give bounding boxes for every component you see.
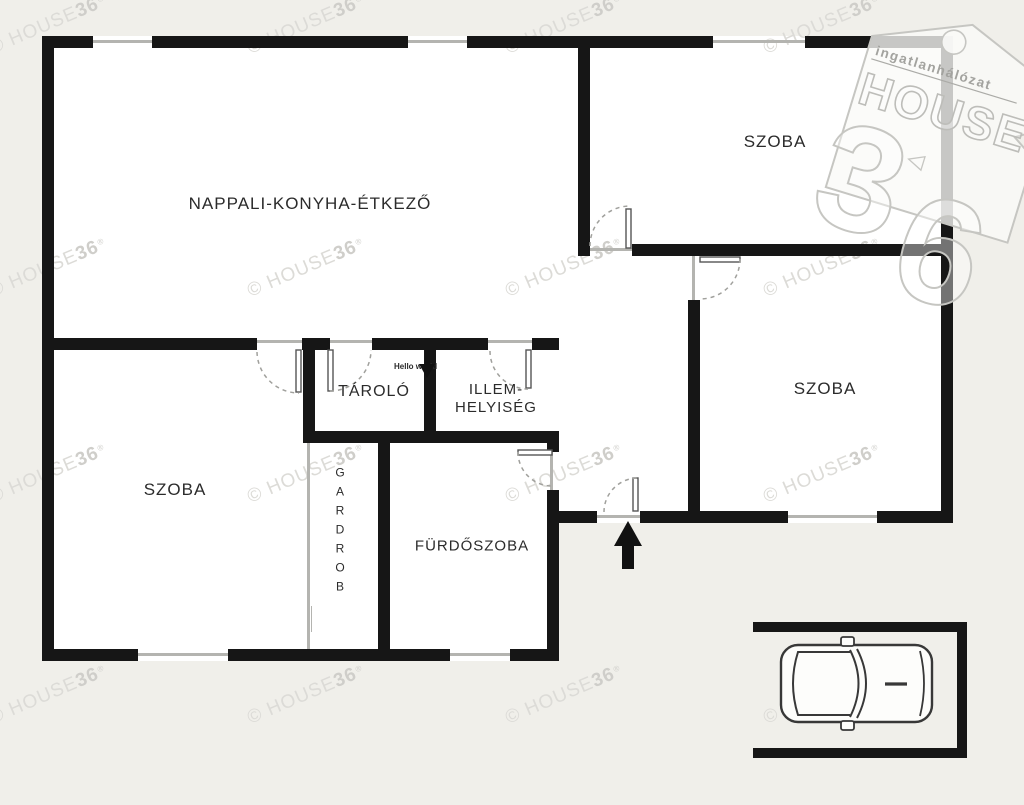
wall-top-2 (152, 36, 408, 48)
door-threshold-szoba-bl (257, 340, 302, 343)
room-label-tarolo: TÁROLÓ (338, 383, 410, 401)
room-label-illem-line1: ILLEM- (455, 381, 537, 399)
door-threshold-tarolo (330, 340, 372, 343)
wall-top-3 (467, 36, 713, 48)
room-label-illem-line2: HELYISÉG (455, 399, 537, 417)
window-top-1 (93, 40, 152, 43)
wall-bottom-right-2 (640, 511, 788, 523)
parking-wall-bottom (753, 748, 967, 758)
window-top-3 (713, 40, 805, 43)
wall-livingroom-szoba (578, 36, 590, 256)
door-threshold-bathroom (550, 452, 553, 490)
floor-plan: © HOUSE36®© HOUSE36®© HOUSE36®© HOUSE36®… (0, 0, 1024, 805)
door-threshold-top-szoba (590, 248, 632, 251)
wall-bathroom-right-2 (547, 490, 559, 661)
room-label-szoba-bottom-left: SZOBA (144, 480, 207, 500)
room-label-szoba-right: SZOBA (794, 379, 857, 399)
room-label-nappali: NAPPALI-KONYHA-ÉTKEZŐ (189, 194, 432, 214)
parking-wall-right (957, 622, 967, 758)
copyright-watermark: © HOUSE36® (742, 650, 901, 740)
copyright-watermark: © HOUSE36® (0, 650, 128, 740)
window-bottom-right (788, 515, 877, 518)
gardrob-divider-tick (311, 606, 312, 632)
room-label-furdoszoba: FÜRDŐSZOBA (415, 538, 529, 555)
wall-bottom-left-2 (228, 649, 450, 661)
wall-tarolo-illem-bottom (303, 431, 559, 443)
door-threshold-illem (488, 340, 532, 343)
wall-szoba-divider (632, 244, 941, 256)
copyright-watermark: © HOUSE36® (484, 650, 643, 740)
gardrob-divider (307, 443, 310, 649)
wall-tarolo-left (303, 338, 315, 443)
wall-nappali-bottom-1 (42, 338, 257, 350)
window-bottom-2 (450, 653, 510, 656)
wall-bottom-right-1 (553, 511, 597, 523)
parking-wall-top (753, 622, 967, 632)
door-threshold-right-szoba (692, 256, 695, 300)
copyright-watermark: © HOUSE36® (226, 650, 385, 740)
window-top-2 (408, 40, 467, 43)
wall-top-4 (805, 36, 953, 48)
wall-bottom-right-3 (877, 511, 953, 523)
wall-nappali-bottom-4 (532, 338, 559, 350)
entrance-threshold (597, 515, 640, 518)
room-label-gardrob: GARDROB (333, 466, 347, 599)
wall-right (941, 36, 953, 523)
wall-bottom-left-1 (42, 649, 138, 661)
room-label-szoba-top-right: SZOBA (744, 132, 807, 152)
wall-gardrob-bathroom (378, 431, 390, 661)
wall-hall-szoba (688, 300, 700, 511)
window-bottom-1 (138, 653, 228, 656)
wall-bathroom-right-1 (547, 431, 559, 452)
